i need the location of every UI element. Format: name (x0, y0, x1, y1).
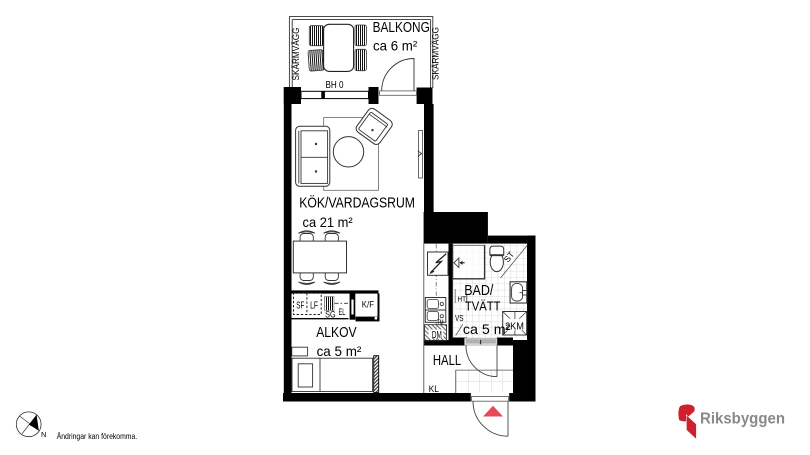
svg-text:BH 0: BH 0 (326, 80, 344, 91)
svg-text:BALKONG: BALKONG (373, 20, 430, 36)
svg-text:K/F: K/F (362, 300, 375, 310)
svg-text:KL: KL (429, 384, 439, 394)
svg-text:ca 6 m²: ca 6 m² (373, 38, 418, 54)
svg-text:HALL: HALL (433, 353, 461, 369)
svg-text:TVÄTT: TVÄTT (465, 299, 501, 313)
svg-text:EL: EL (339, 307, 346, 317)
svg-text:HT: HT (458, 294, 467, 303)
svg-text:ca 21 m²: ca 21 m² (303, 214, 354, 230)
svg-text:DM: DM (432, 330, 442, 341)
svg-text:KÖK/VARDAGSRUM: KÖK/VARDAGSRUM (299, 194, 415, 212)
svg-text:Ändringar kan förekomma.: Ändringar kan förekomma. (57, 431, 138, 441)
svg-text:LF: LF (310, 300, 318, 312)
svg-text:ca 5 m²: ca 5 m² (317, 343, 362, 359)
svg-text:SKÄRMVÄGG: SKÄRMVÄGG (291, 28, 301, 81)
svg-text:SF: SF (296, 300, 304, 312)
svg-text:ALKOV: ALKOV (316, 325, 357, 341)
svg-text:Riksbyggen: Riksbyggen (700, 411, 785, 428)
svg-text:SKÄRMVÄGG: SKÄRMVÄGG (431, 27, 441, 80)
svg-text:TM: TM (437, 320, 444, 327)
svg-text:VS: VS (455, 313, 464, 323)
svg-text:BAD/: BAD/ (464, 283, 494, 299)
svg-text:N: N (41, 430, 46, 439)
svg-text:ca 5 m²: ca 5 m² (463, 321, 511, 337)
